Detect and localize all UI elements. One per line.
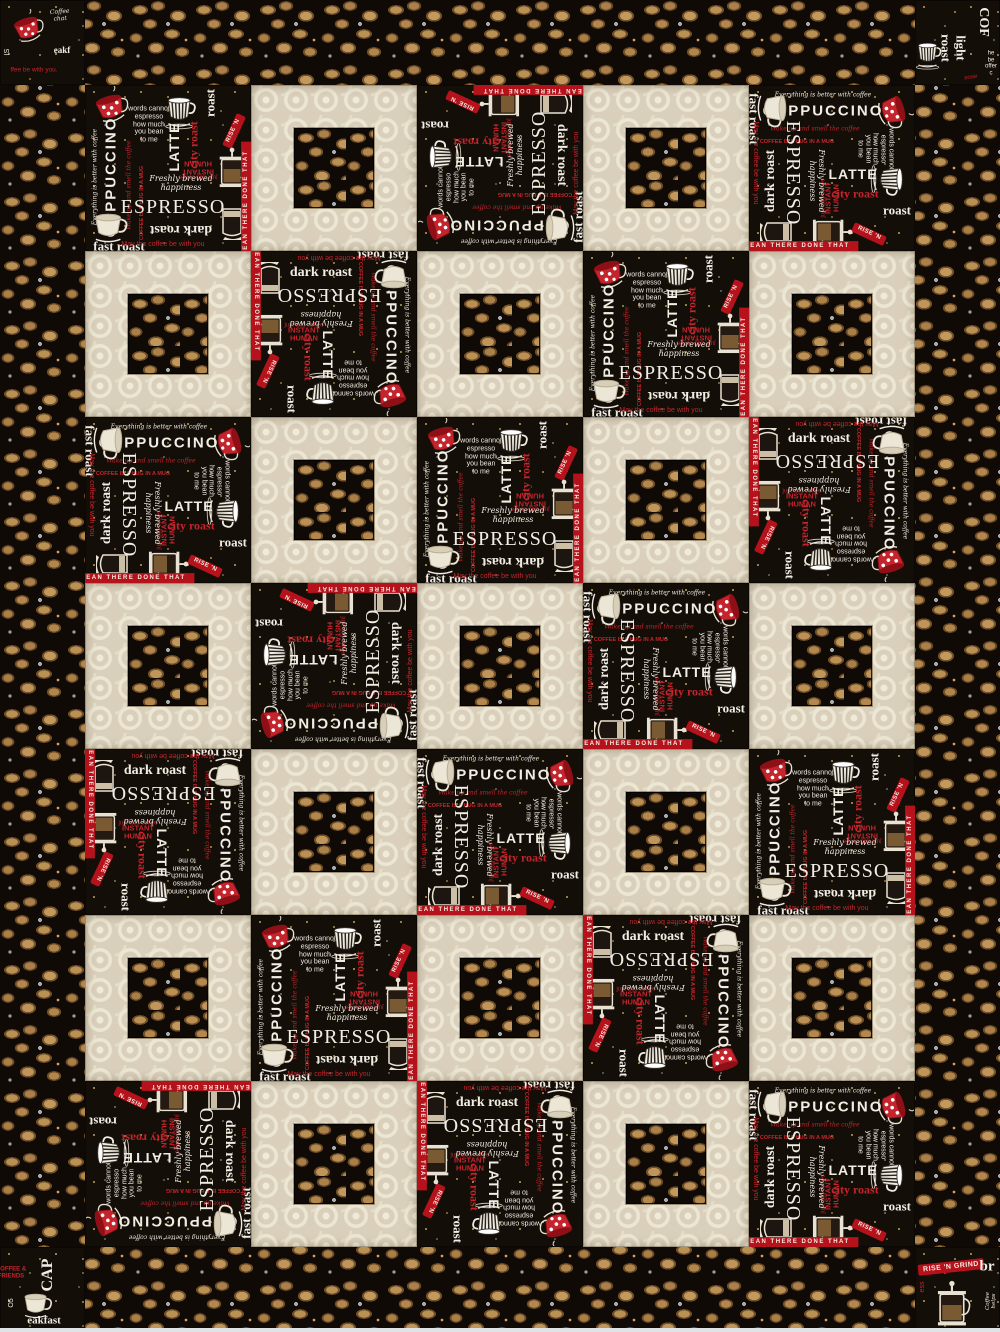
fabric-word: ESPRESSO — [450, 785, 472, 890]
fabric-word: dark roast — [788, 431, 850, 447]
fabric-word: May the coffee be with you — [419, 785, 427, 868]
fabric-word: ESPRESSO — [782, 1117, 804, 1222]
quilt: words cannot espresso how much you bean … — [0, 0, 1000, 1332]
fabric-word: May the coffee be with you — [121, 241, 204, 249]
bean-center-square — [128, 958, 208, 1038]
fabric-word: May the coffee be with you — [795, 419, 878, 427]
coffee-words-block: words cannot espresso how much you bean … — [417, 417, 583, 583]
fabric-word: dark roast — [648, 387, 710, 403]
fabric-word: May the coffee be with you — [573, 131, 581, 214]
words-fabric-tile: words cannot espresso how much you bean … — [583, 915, 749, 1081]
bean-center-square — [626, 1124, 706, 1204]
words-fabric-tile: words cannot espresso how much you bean … — [749, 417, 915, 583]
band-text: BEAN THERE DONE THAT — [417, 905, 527, 915]
fabric-word: May the coffee be with you — [297, 253, 380, 261]
band-text: BEAN THERE DONE THAT — [739, 307, 749, 417]
fabric-word: roast — [204, 89, 219, 117]
words-fabric-tile: words cannot espresso how much you bean … — [749, 749, 915, 915]
fabric-word: Freshly brewed happiness — [784, 475, 854, 493]
coffee-words-block: words cannot espresso how much you bean … — [251, 251, 417, 417]
fabric-word: ESPRESSO — [453, 528, 558, 550]
coffee-words-block: words cannot espresso how much you bean … — [85, 1081, 251, 1247]
fabric-word: dark roast — [221, 1120, 237, 1182]
fabric-word: Freshly brewed happiness — [478, 507, 548, 525]
cream-square-block — [583, 1081, 749, 1247]
fabric-word: ffee be with you. — [10, 66, 57, 73]
fabric-word: Freshly brewed happiness — [807, 146, 825, 216]
fabric-word: Freshly brewed happiness — [175, 1116, 193, 1186]
fabric-word: roast — [421, 118, 449, 133]
fabric-word: dark roast — [763, 1146, 779, 1208]
border-corner-top-right: light roastCOF he be offer csose — [915, 0, 1000, 85]
fabric-word: Freshly brewed happiness — [618, 973, 688, 991]
fabric-word: ESPRESSO — [782, 121, 804, 226]
fabric-word: roast — [89, 1114, 117, 1129]
fabric-word: dark roast — [456, 1095, 518, 1111]
words-fabric-tile: words cannot espresso how much you bean … — [85, 417, 251, 583]
fabric-word: ESPRESSO — [118, 453, 140, 558]
words-fabric-tile: words cannot espresso how much you bean … — [417, 1081, 583, 1247]
coffee-words-block: words cannot espresso how much you bean … — [85, 417, 251, 583]
words-fabric-tile: words cannot espresso how much you bean … — [251, 251, 417, 417]
bean-center-square — [294, 792, 374, 872]
bean-center-square — [460, 958, 540, 1038]
fabric-word: dark roast — [290, 265, 352, 281]
fabric-word: COFFEE & FRIENDS — [0, 1266, 26, 1279]
coffee-words-block: words cannot espresso how much you bean … — [85, 749, 251, 915]
bean-center-square — [626, 792, 706, 872]
coffee-words-block: words cannot espresso how much you bean … — [583, 583, 749, 749]
cream-square-block — [749, 251, 915, 417]
band-text: BEAN THERE DONE THAT — [85, 573, 195, 583]
fabric-word: dark roast — [553, 124, 569, 186]
fabric-word: Freshly brewed happiness — [644, 341, 714, 359]
bean-center-square — [128, 626, 208, 706]
fabric-word: ESPRESSO — [785, 860, 890, 882]
cream-square-block — [583, 85, 749, 251]
fabric-word: Freshly brewed happiness — [312, 1005, 382, 1023]
fabric-word: dark roast — [622, 929, 684, 945]
bean-center-square — [792, 626, 872, 706]
fabric-word: ESPRESSO — [111, 782, 216, 804]
words-fabric-tile: words cannot espresso how much you bean … — [85, 749, 251, 915]
fabric-word: Freshly brewed happiness — [286, 309, 356, 327]
fabric-word: sose — [964, 74, 978, 83]
fabric-word: roast — [883, 204, 911, 219]
band-text: BEAN THERE DONE THAT — [307, 583, 417, 593]
band-text: BEAN THERE DONE THAT — [141, 1081, 251, 1091]
fabric-word: ESPRESSO — [443, 1114, 548, 1136]
cream-square-block — [417, 915, 583, 1081]
cream-square-block — [417, 583, 583, 749]
fabric-word: Freshly brewed happiness — [641, 644, 659, 714]
band-text: BEAN THERE DONE THAT — [749, 241, 859, 251]
fabric-word: Freshly brewed happiness — [475, 810, 493, 880]
fabric-word: roast — [868, 753, 883, 781]
fabric-word: May the coffee be with you — [453, 573, 536, 581]
words-fabric-tile: words cannot espresso how much you bean … — [85, 1081, 251, 1247]
words-fabric-tile: words cannot espresso how much you bean … — [583, 251, 749, 417]
coffee-words-block: words cannot espresso how much you bean … — [749, 85, 915, 251]
red-polka-cup-icon — [4, 6, 51, 53]
coffee-words-block: words cannot espresso how much you bean … — [251, 583, 417, 749]
coffee-words-block: words cannot espresso how much you bean … — [583, 915, 749, 1081]
fabric-word: dark roast — [150, 221, 212, 237]
cream-square-block — [583, 417, 749, 583]
fabric-word: he be offer c — [985, 51, 997, 78]
band-text: BEAN THERE DONE THAT — [583, 739, 693, 749]
bean-center-square — [460, 626, 540, 706]
border-corner-top-left: Coffee chateakfffee be with you.IS — [0, 0, 85, 85]
fabric-word: May the coffee be with you — [287, 1071, 370, 1079]
fabric-word: IS — [4, 49, 12, 56]
quilt-grid: words cannot espresso how much you bean … — [85, 85, 915, 1247]
fabric-word: CAP — [39, 1259, 57, 1292]
border-corner-bottom-left: CAP eakfast roastCOFFEE & FRIENDSO5 — [0, 1247, 85, 1332]
bean-center-square — [626, 460, 706, 540]
cream-square-block — [85, 915, 251, 1081]
striped-cup-icon — [915, 41, 946, 71]
fabric-word: Freshly brewed happiness — [341, 618, 359, 688]
fabric-word: May the coffee be with you — [463, 1083, 546, 1091]
fabric-word: May the coffee be with you — [87, 453, 95, 536]
fabric-word: roast — [370, 919, 385, 947]
coffee-words-block: words cannot espresso how much you bean … — [749, 417, 915, 583]
bean-center-square — [792, 958, 872, 1038]
fabric-word: May the coffee be with you — [131, 751, 214, 759]
words-fabric-tile: words cannot espresso how much you bean … — [583, 583, 749, 749]
ribbon-text: RISE 'N GRIND — [918, 1258, 985, 1276]
fabric-word: roast — [219, 536, 247, 551]
bean-center-square — [294, 460, 374, 540]
cream-square-block — [749, 583, 915, 749]
cream-square-block — [583, 749, 749, 915]
fabric-word: dark roast — [124, 763, 186, 779]
band-text: BEAN THERE DONE THAT — [251, 251, 261, 361]
band-text: BEAN THERE DONE THAT — [905, 805, 915, 915]
cream-square-block — [85, 583, 251, 749]
fabric-word: dark roast — [814, 885, 876, 901]
fabric-word: roast — [717, 702, 745, 717]
fabric-word: roast — [616, 1049, 631, 1077]
fabric-word: Freshly brewed happiness — [452, 1139, 522, 1157]
fabric-word: Freshly brewed happiness — [143, 478, 161, 548]
fabric-word: dark roast — [387, 622, 403, 684]
fabric-word: ESPRESSO — [609, 948, 714, 970]
fabric-word: roast — [255, 616, 283, 631]
band-text: BEAN THERE DONE THAT — [85, 749, 95, 859]
fabric-word: eakf — [54, 45, 71, 55]
fabric-word: ESPRESSO — [362, 609, 384, 714]
fabric-word: Freshly brewed happiness — [146, 175, 216, 193]
bean-center-square — [294, 128, 374, 208]
fabric-word: dark roast — [763, 150, 779, 212]
bean-center-square — [626, 128, 706, 208]
words-fabric-tile: words cannot espresso how much you bean … — [749, 85, 915, 251]
fabric-word: O5 — [8, 1298, 16, 1307]
bean-center-square — [128, 294, 208, 374]
words-fabric-tile: words cannot espresso how much you bean … — [251, 915, 417, 1081]
cream-square-block — [251, 85, 417, 251]
fabric-word: roast — [782, 551, 797, 579]
fabric-word: May the coffee be with you — [619, 407, 702, 415]
words-fabric-tile: words cannot espresso how much you bean … — [251, 583, 417, 749]
bean-center-square — [792, 294, 872, 374]
band-text: BEAN THERE DONE THAT — [573, 473, 583, 583]
coffee-words-block: words cannot espresso how much you bean … — [749, 1081, 915, 1247]
words-fabric-tile: words cannot espresso how much you bean … — [417, 85, 583, 251]
fabric-word: Freshly brewed happiness — [810, 839, 880, 857]
words-fabric-tile: words cannot espresso how much you bean … — [417, 749, 583, 915]
fabric-word: ESPRESSO — [287, 1026, 392, 1048]
coffee-words-block: words cannot espresso how much you bean … — [417, 749, 583, 915]
fabric-word: ess — [919, 1282, 927, 1293]
fabric-word: Freshly brewed happiness — [120, 807, 190, 825]
fabric-word: COF — [975, 7, 991, 37]
fabric-word: ESPRESSO — [528, 111, 550, 216]
fabric-word: dark roast — [597, 648, 613, 710]
fabric-word: ESPRESSO — [196, 1107, 218, 1212]
band-text: BEAN THERE DONE THAT — [241, 141, 251, 251]
fabric-word: roast — [118, 883, 133, 911]
band-text: BEAN THERE DONE THAT — [583, 915, 593, 1025]
cream-square-block — [251, 1081, 417, 1247]
fabric-word: dark roast — [431, 814, 447, 876]
fabric-word: dark roast — [316, 1051, 378, 1067]
fabric-word: Freshly brewed happiness — [807, 1142, 825, 1212]
fabric-word: roast — [551, 868, 579, 883]
cream-square-block — [251, 749, 417, 915]
cream-square-block — [85, 251, 251, 417]
fabric-word: roast — [284, 385, 299, 413]
fabric-word: roast — [883, 1200, 911, 1215]
fabric-word: ESPRESSO — [121, 196, 226, 218]
coffee-words-block: words cannot espresso how much you bean … — [417, 85, 583, 251]
cream-square-block — [251, 417, 417, 583]
fabric-word: Coffee chat — [47, 8, 73, 23]
fabric-word: May the coffee be with you — [407, 629, 415, 712]
coffee-words-block: words cannot espresso how much you bean … — [583, 251, 749, 417]
fabric-word: ESPRESSO — [277, 284, 382, 306]
fabric-word: roast — [450, 1215, 465, 1243]
words-fabric-tile: words cannot espresso how much you bean … — [749, 1081, 915, 1247]
fabric-word: May the coffee be with you — [629, 917, 712, 925]
bean-center-square — [460, 294, 540, 374]
fabric-word: dark roast — [99, 482, 115, 544]
band-text: BEAN THERE DONE THAT — [417, 1081, 427, 1191]
fabric-word: May the coffee be with you — [785, 905, 868, 913]
photo-bottom-edge — [0, 1328, 1000, 1332]
fabric-word: May the coffee be with you — [751, 1117, 759, 1200]
cream-square-block — [749, 915, 915, 1081]
bean-center-square — [294, 1124, 374, 1204]
fabric-word: Coffee helps — [985, 1292, 997, 1310]
band-text: BEAN THERE DONE THAT — [473, 85, 583, 95]
fabric-word: br — [980, 1259, 995, 1276]
coffee-words-block: words cannot espresso how much you bean … — [749, 749, 915, 915]
fabric-word: May the coffee be with you — [241, 1127, 249, 1210]
fabric-word: ESPRESSO — [619, 362, 724, 384]
band-text: BEAN THERE DONE THAT — [749, 417, 759, 527]
words-fabric-tile: words cannot espresso how much you bean … — [85, 85, 251, 251]
words-fabric-tile: words cannot espresso how much you bean … — [417, 417, 583, 583]
fabric-word: May the coffee be with you — [751, 121, 759, 204]
fabric-word: roast — [702, 255, 717, 283]
fabric-word: May the coffee be with you — [585, 619, 593, 702]
band-text: BEAN THERE DONE THAT — [749, 1237, 859, 1247]
french-press-icon — [932, 1279, 975, 1331]
coffee-words-block: words cannot espresso how much you bean … — [85, 85, 251, 251]
fabric-word: roast — [536, 421, 551, 449]
band-text: BEAN THERE DONE THAT — [407, 971, 417, 1081]
cream-square-block — [417, 251, 583, 417]
coffee-words-block: words cannot espresso how much you bean … — [251, 915, 417, 1081]
coffee-words-block: words cannot espresso how much you bean … — [417, 1081, 583, 1247]
fabric-word: Freshly brewed happiness — [507, 120, 525, 190]
border-corner-bottom-right: RISE 'N GRINDbr Coffee helpsess — [915, 1247, 1000, 1332]
fabric-word: ESPRESSO — [616, 619, 638, 724]
fabric-word: dark roast — [482, 553, 544, 569]
fabric-word: ESPRESSO — [775, 450, 880, 472]
